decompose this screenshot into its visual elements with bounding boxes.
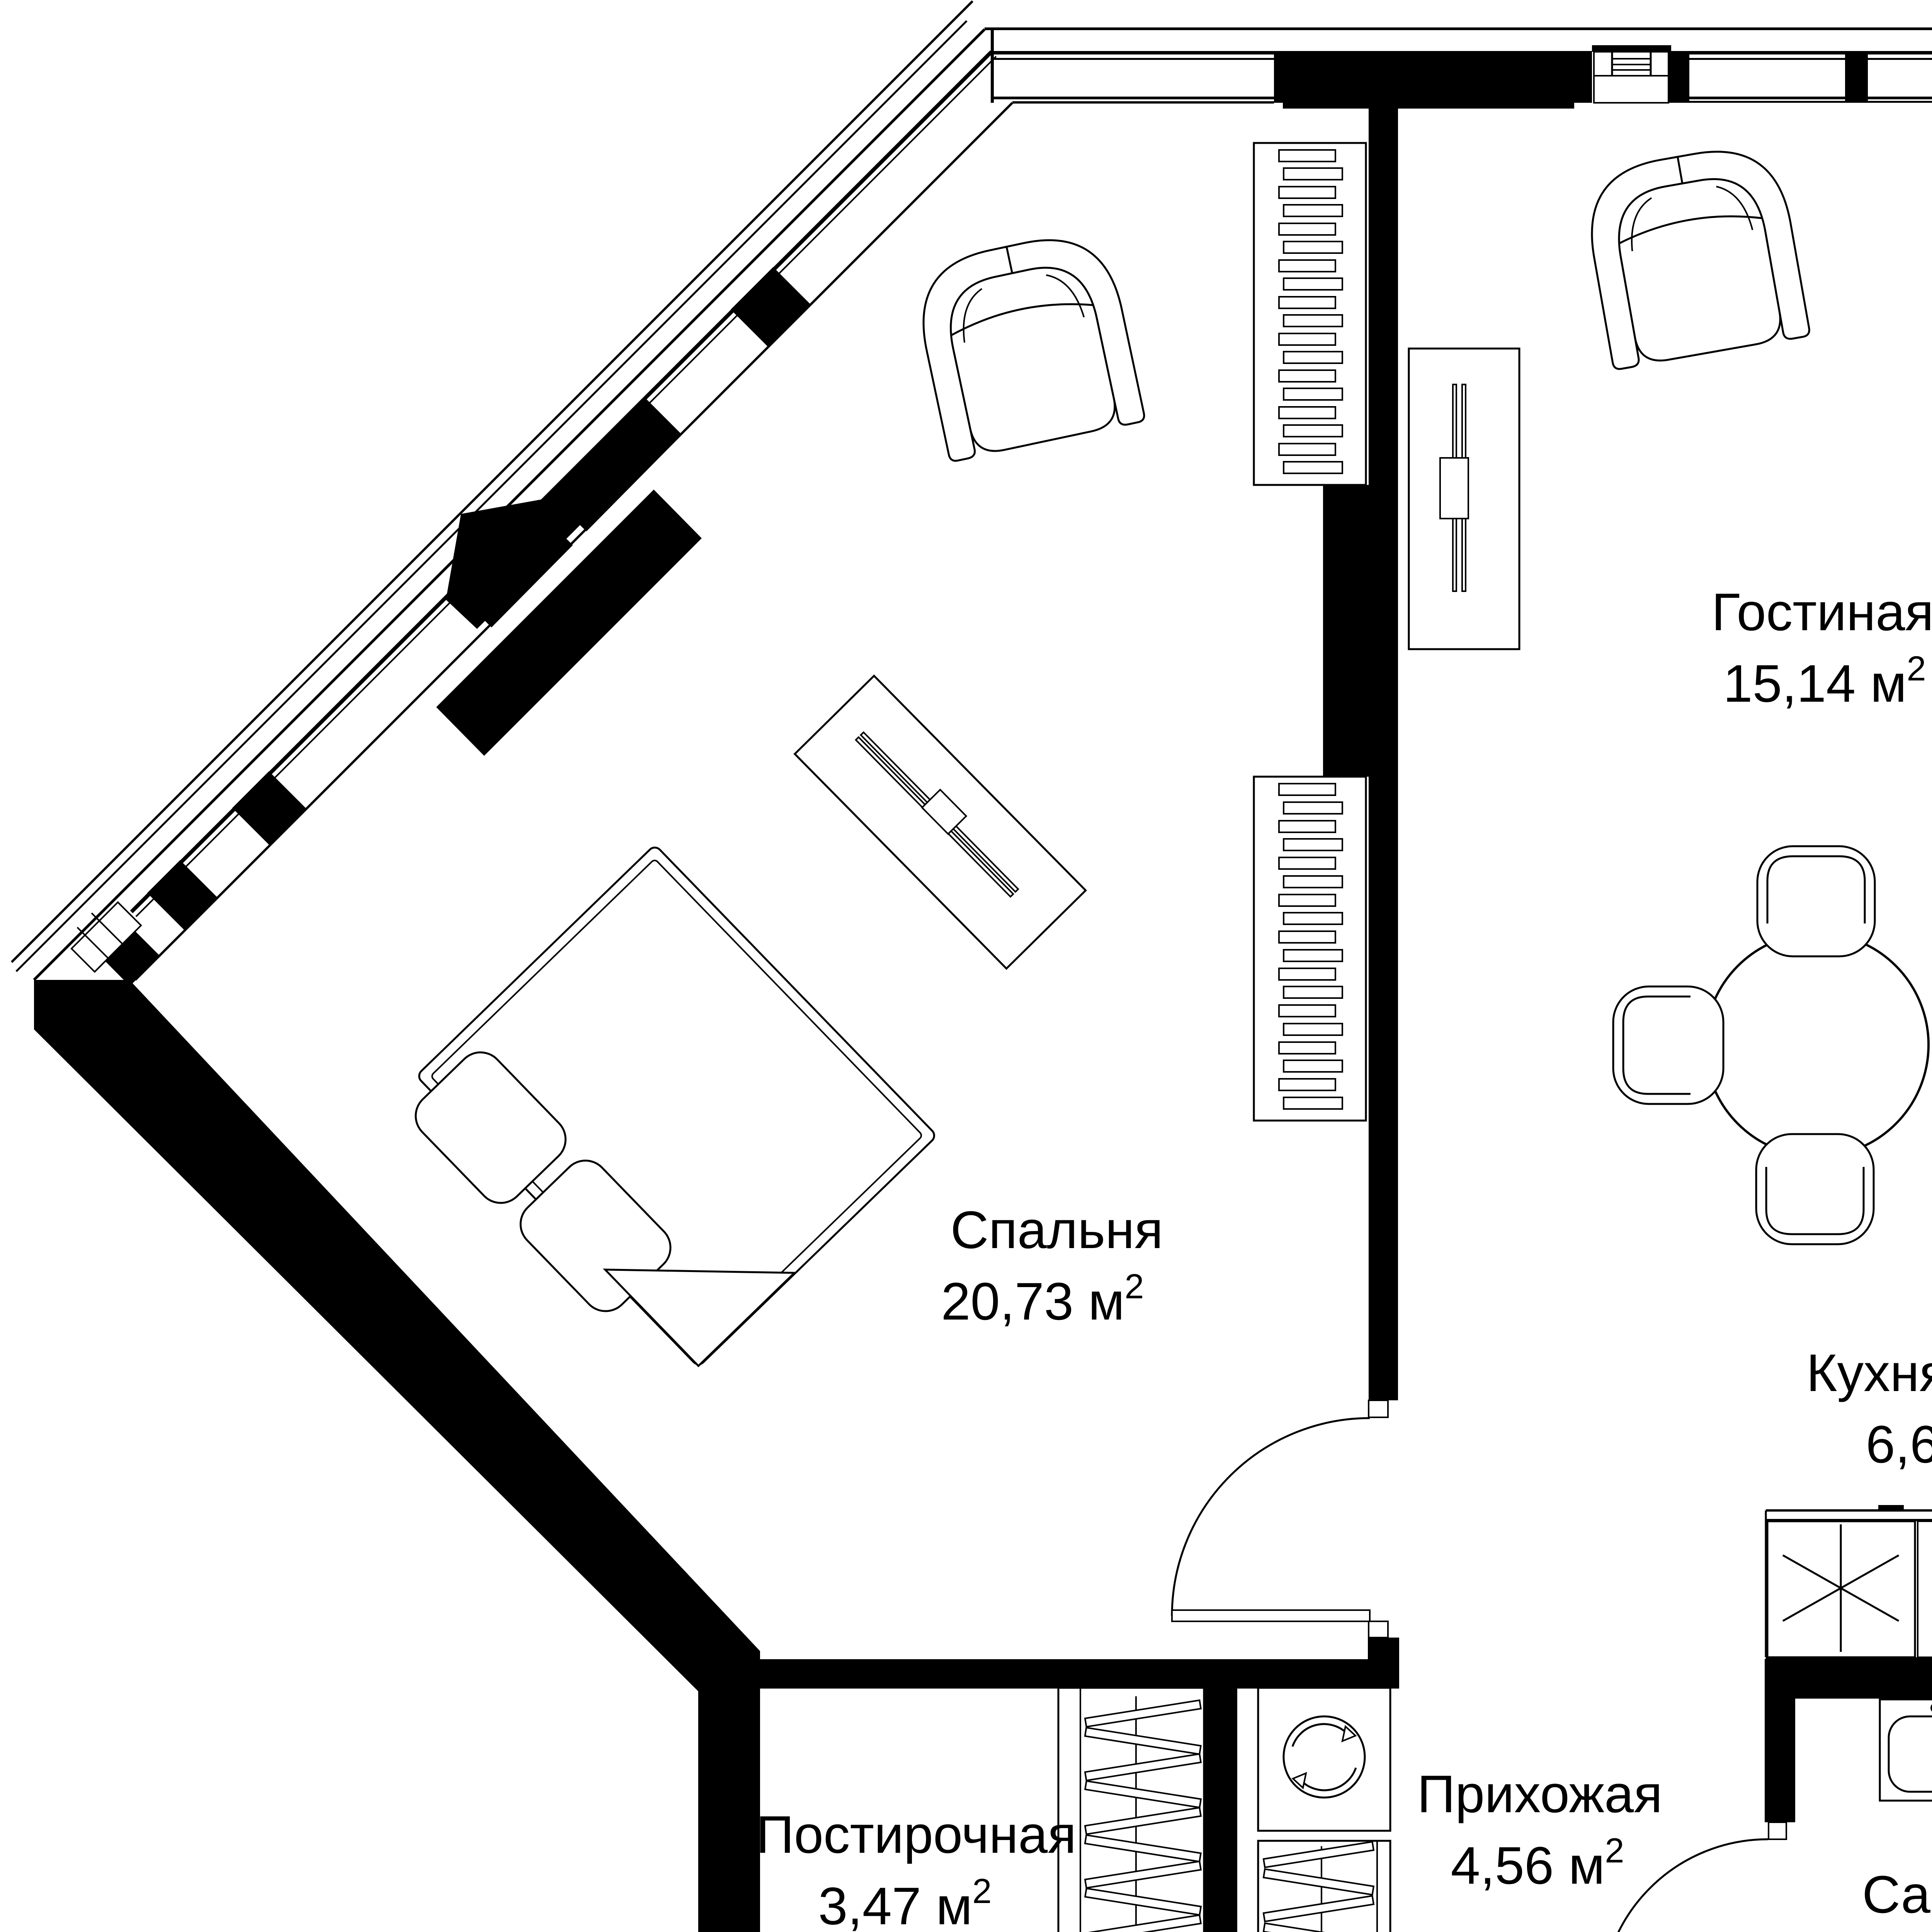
svg-text:4,56 м2: 4,56 м2 bbox=[1451, 1832, 1624, 1895]
svg-text:Кухня-ниша: Кухня-ниша bbox=[1806, 1344, 1932, 1403]
svg-text:Спальня: Спальня bbox=[951, 1201, 1163, 1260]
svg-text:Постирочная: Постирочная bbox=[756, 1805, 1076, 1864]
svg-text:Гостиная: Гостиная bbox=[1711, 583, 1932, 642]
svg-text:20,73 м2: 20,73 м2 bbox=[941, 1267, 1144, 1331]
svg-text:15,14 м2: 15,14 м2 bbox=[1723, 650, 1926, 713]
svg-text:3,47 м2: 3,47 м2 bbox=[818, 1872, 992, 1932]
svg-text:Санузел: Санузел bbox=[1862, 1865, 1932, 1924]
svg-text:Прихожая: Прихожая bbox=[1417, 1765, 1663, 1824]
svg-text:6,69 м2: 6,69 м2 bbox=[1866, 1410, 1932, 1474]
